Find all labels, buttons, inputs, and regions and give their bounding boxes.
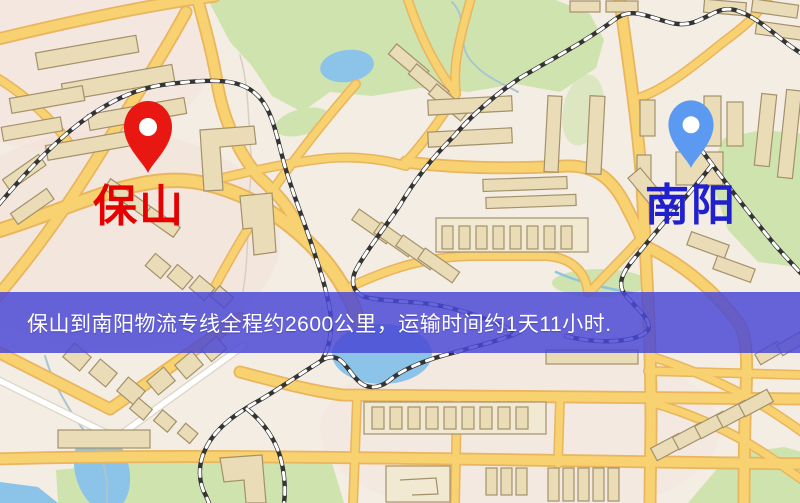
origin-marker-label: 保山 <box>93 182 185 231</box>
map-canvas: 保山 南阳 <box>0 0 800 503</box>
route-info-banner: 保山到南阳物流专线全程约2600公里，运输时间约1天11小时. <box>0 292 800 353</box>
destination-marker-label: 南阳 <box>645 181 737 230</box>
map-view: 保山 南阳 保山到南阳物流专线全程约2600公里，运输时间约1天11小时. <box>0 0 800 503</box>
route-info-text: 保山到南阳物流专线全程约2600公里，运输时间约1天11小时. <box>0 308 612 338</box>
